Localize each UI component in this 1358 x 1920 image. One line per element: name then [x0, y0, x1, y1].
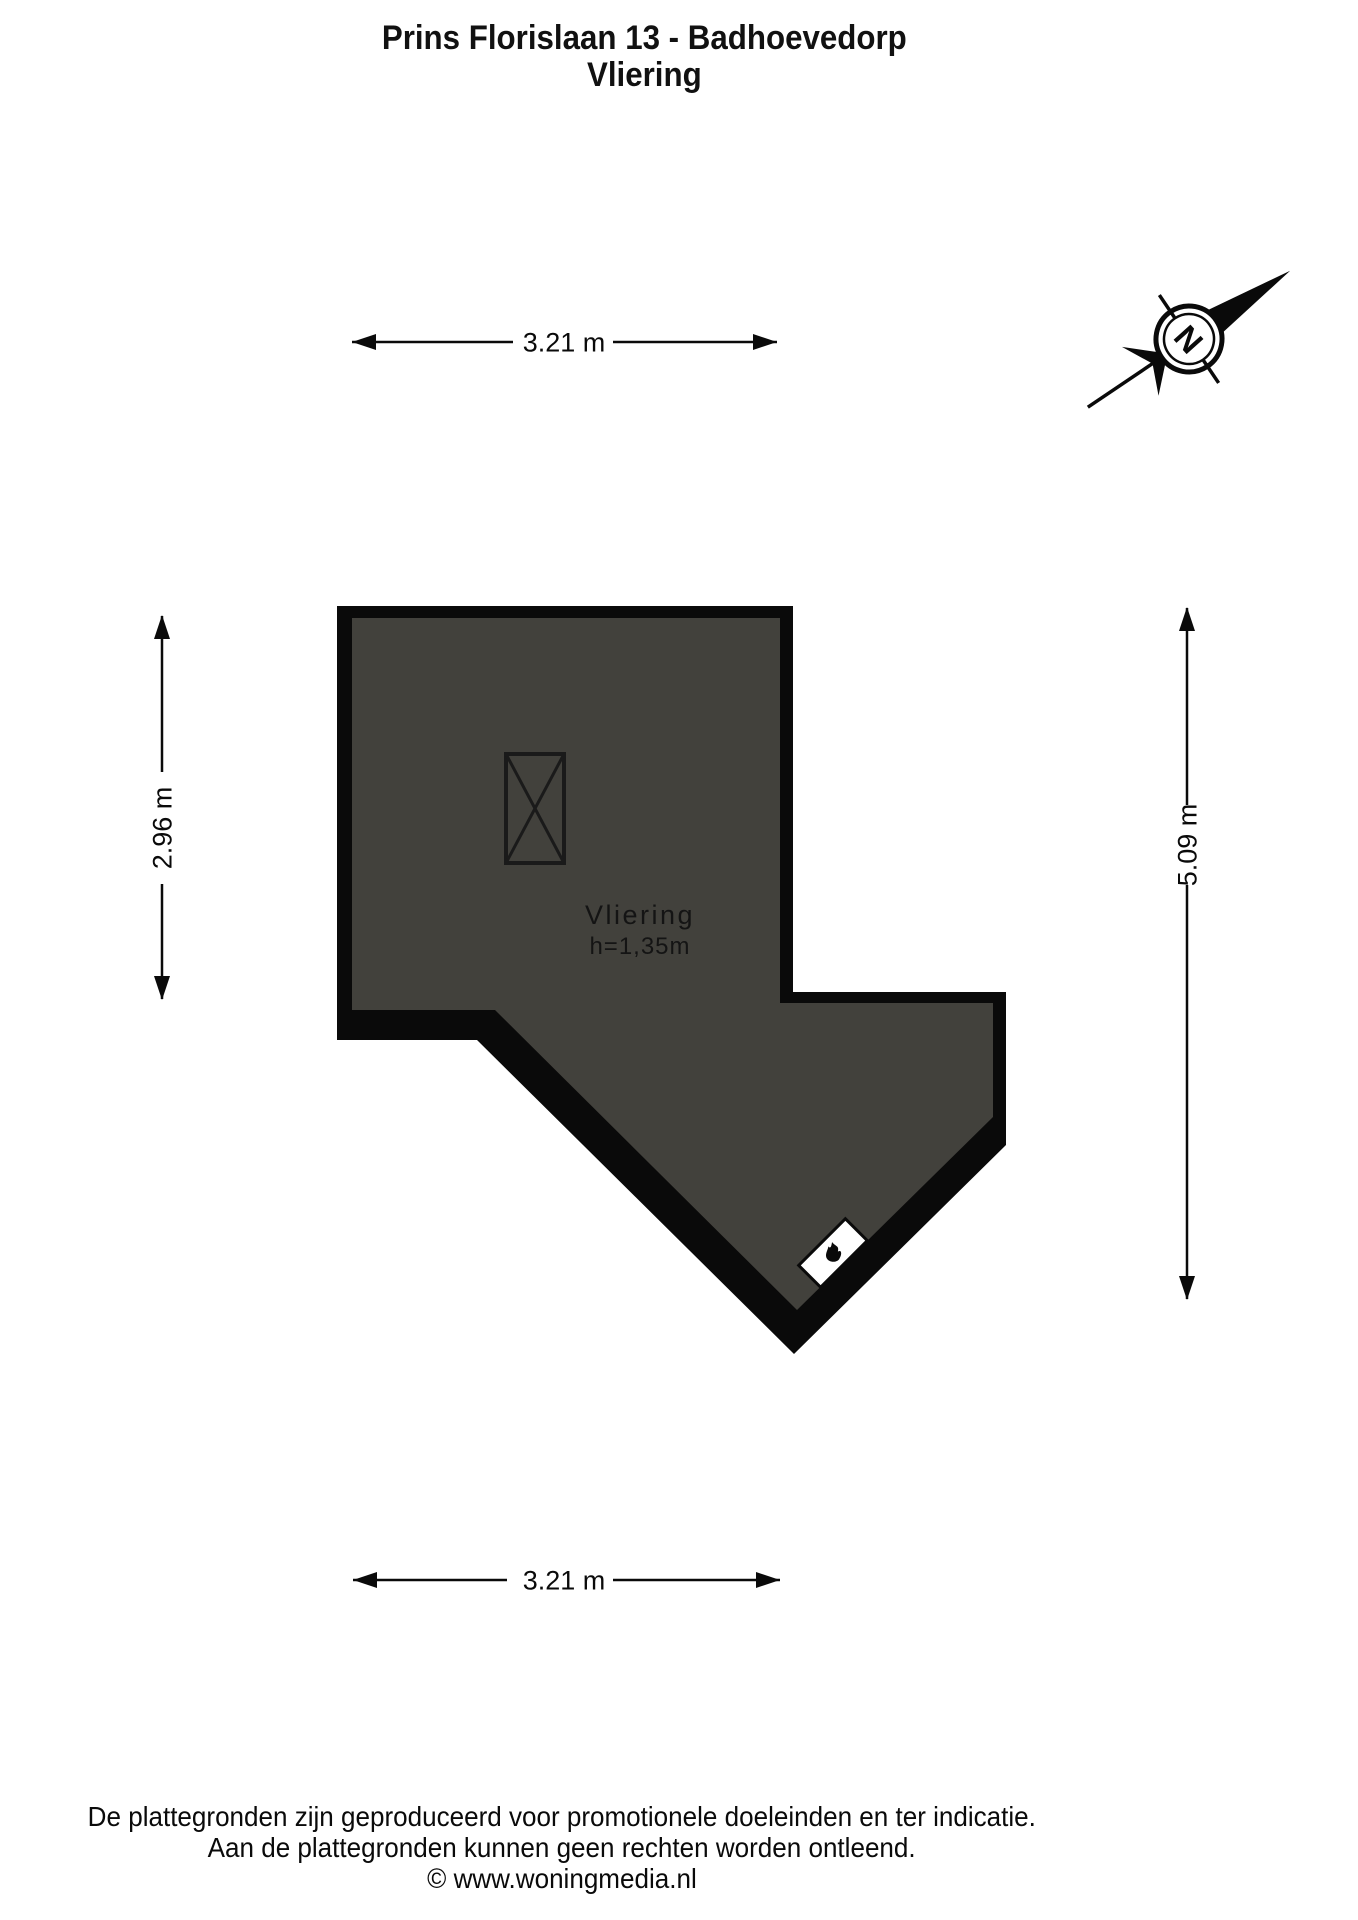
- dimension-left: 2.96 m: [147, 615, 177, 1000]
- copyright-line: © www.woningmedia.nl: [427, 1863, 697, 1894]
- room-height-label: h=1,35m: [589, 933, 690, 960]
- dimension-right-label: 5.09 m: [1172, 804, 1202, 887]
- dimension-bottom: 3.21 m: [353, 1565, 780, 1595]
- arrowhead-right: [753, 334, 777, 350]
- footer-disclaimer: De plattegronden zijn geproduceerd voor …: [0, 1801, 1124, 1894]
- dimension-bottom-label: 3.21 m: [523, 1565, 606, 1595]
- floorplan-page: Prins Florislaan 13 - Badhoevedorp Vlier…: [0, 0, 1358, 1920]
- arrowhead-down: [1179, 1276, 1195, 1300]
- floor-shape: [337, 606, 1006, 1354]
- arrowhead-down: [154, 976, 170, 1000]
- dimension-top: 3.21 m: [352, 327, 777, 357]
- room-label: Vliering: [585, 900, 695, 930]
- dimension-left-label: 2.96 m: [147, 787, 177, 870]
- dimension-top-label: 3.21 m: [523, 327, 606, 357]
- disclaimer-line-1: De plattegronden zijn geproduceerd voor …: [88, 1801, 1036, 1832]
- arrowhead-up: [1179, 607, 1195, 631]
- arrowhead-up: [154, 615, 170, 639]
- floorplan-drawing: Vliering h=1,35m 3.21 m 3.21 m: [0, 0, 1358, 1920]
- arrowhead-left: [352, 334, 376, 350]
- arrowhead-left: [353, 1572, 377, 1588]
- dimension-right: 5.09 m: [1172, 607, 1202, 1300]
- arrowhead-right: [756, 1572, 780, 1588]
- north-compass-icon: N: [1058, 227, 1320, 451]
- disclaimer-line-2: Aan de plattegronden kunnen geen rechten…: [208, 1832, 916, 1863]
